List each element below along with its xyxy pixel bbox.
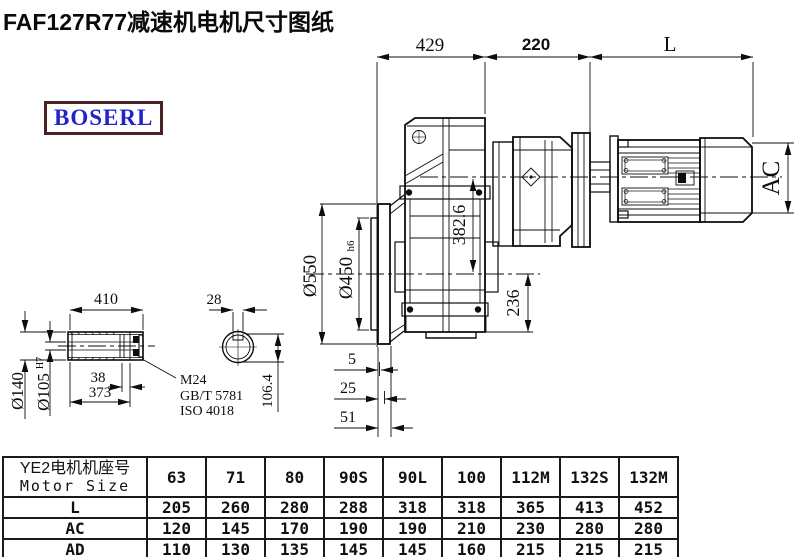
dim-550-label: Ø550 xyxy=(300,255,321,297)
table-col-header: 90L xyxy=(383,457,442,497)
table-cell: 205 xyxy=(147,497,206,518)
dim-51-label: 51 xyxy=(340,409,356,426)
table-cell: 215 xyxy=(619,539,678,557)
second-stage-housing xyxy=(493,133,610,247)
table-header-cn: YE2电机机座号 xyxy=(4,459,146,478)
bolt-note-m24: M24 xyxy=(180,373,206,388)
table-cell: 190 xyxy=(324,518,383,539)
table-col-header: 80 xyxy=(265,457,324,497)
dim-L-label: L xyxy=(664,32,677,56)
dim-450-tolerance-label: h6 xyxy=(345,240,357,252)
dim-373-label: 373 xyxy=(89,385,112,401)
table-cell: 280 xyxy=(265,497,324,518)
table-cell: 230 xyxy=(501,518,560,539)
dim-ac-label: AC xyxy=(758,161,785,196)
table-cell: 318 xyxy=(442,497,501,518)
table-cell: 280 xyxy=(560,518,619,539)
table-header-motor-size: YE2电机机座号Motor Size xyxy=(3,457,147,497)
dim-1064-label: 106.4 xyxy=(260,374,276,408)
table-cell: 190 xyxy=(383,518,442,539)
table-cell: 110 xyxy=(147,539,206,557)
table-row-label: AC xyxy=(3,518,147,539)
dim-25-label: 25 xyxy=(340,380,356,397)
table-cell: 145 xyxy=(324,539,383,557)
table-cell: 145 xyxy=(383,539,442,557)
gearbox-housing xyxy=(395,118,498,338)
table-cell: 135 xyxy=(265,539,324,557)
table-cell: 170 xyxy=(265,518,324,539)
bolt-note-gbt: GB/T 5781 xyxy=(180,389,243,404)
table-row-label: L xyxy=(3,497,147,518)
table-cell: 160 xyxy=(442,539,501,557)
fan-cowl xyxy=(700,138,752,222)
table-cell: 365 xyxy=(501,497,560,518)
table-col-header: 132M xyxy=(619,457,678,497)
dim-140-label: Ø140 xyxy=(8,372,27,410)
page: FAF127R77减速机电机尺寸图纸 BOSERL 429 220 L xyxy=(0,0,800,557)
table-cell: 215 xyxy=(501,539,560,557)
dim-410-label: 410 xyxy=(94,291,118,308)
table-cell: 318 xyxy=(383,497,442,518)
dim-28-label: 28 xyxy=(207,292,222,308)
table-header-en: Motor Size xyxy=(4,478,146,495)
table-row: AD110130135145145160215215215 xyxy=(3,539,678,557)
table-cell: 215 xyxy=(560,539,619,557)
dim-38-label: 38 xyxy=(91,370,106,386)
table-cell: 210 xyxy=(442,518,501,539)
table-cell: 130 xyxy=(206,539,265,557)
dim-105-tolerance-label: H7 xyxy=(35,357,46,369)
bolt-note-iso: ISO 4018 xyxy=(180,404,234,419)
table-col-header: 112M xyxy=(501,457,560,497)
table-col-header: 71 xyxy=(206,457,265,497)
centerlines xyxy=(58,177,782,346)
output-flange xyxy=(371,195,404,437)
dim-236-label: 236 xyxy=(503,290,523,317)
table-col-header: 132S xyxy=(560,457,619,497)
table-row: L205260280288318318365413452 xyxy=(3,497,678,518)
dim-429-label: 429 xyxy=(416,35,445,56)
table-row-label: AD xyxy=(3,539,147,557)
table-cell: 413 xyxy=(560,497,619,518)
table-cell: 452 xyxy=(619,497,678,518)
motor xyxy=(610,136,752,222)
dim-382-label: 382.6 xyxy=(449,205,469,246)
dim-105-label: Ø105 xyxy=(34,373,53,411)
table-col-header: 100 xyxy=(442,457,501,497)
bolt-leader-line xyxy=(142,359,176,378)
dim-5-label: 5 xyxy=(348,351,356,368)
motor-size-table: YE2电机机座号Motor Size63718090S90L100112M132… xyxy=(2,456,679,557)
table-col-header: 90S xyxy=(324,457,383,497)
table-cell: 280 xyxy=(619,518,678,539)
dim-450-label: Ø450 xyxy=(336,257,357,299)
dim-220-label: 220 xyxy=(522,35,550,54)
table-cell: 260 xyxy=(206,497,265,518)
table-cell: 288 xyxy=(324,497,383,518)
table-cell: 145 xyxy=(206,518,265,539)
table-row: AC120145170190190210230280280 xyxy=(3,518,678,539)
table-cell: 120 xyxy=(147,518,206,539)
table-col-header: 63 xyxy=(147,457,206,497)
